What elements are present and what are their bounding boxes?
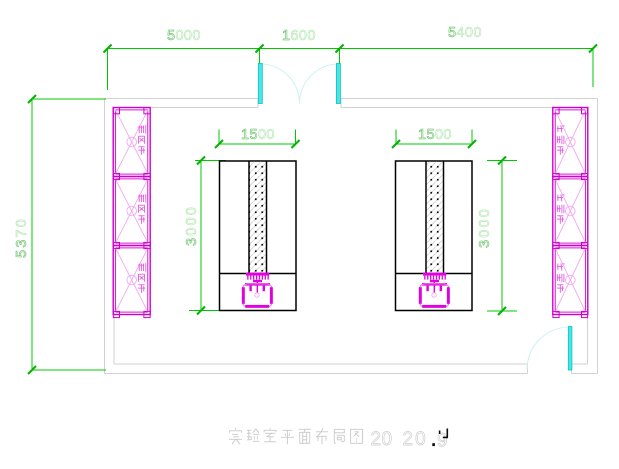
svg-text:5400: 5400: [448, 25, 482, 41]
svg-text:3000: 3000: [477, 207, 493, 248]
svg-text:5370: 5370: [14, 217, 30, 258]
svg-text:1600: 1600: [282, 28, 316, 44]
svg-text:20: 20: [403, 429, 428, 450]
svg-text:3000: 3000: [184, 205, 200, 246]
svg-text:1500: 1500: [241, 127, 275, 143]
svg-text:9: 9: [437, 431, 448, 452]
svg-text:20: 20: [371, 429, 393, 450]
svg-text:1500: 1500: [418, 127, 452, 143]
svg-text:5000: 5000: [167, 28, 201, 44]
